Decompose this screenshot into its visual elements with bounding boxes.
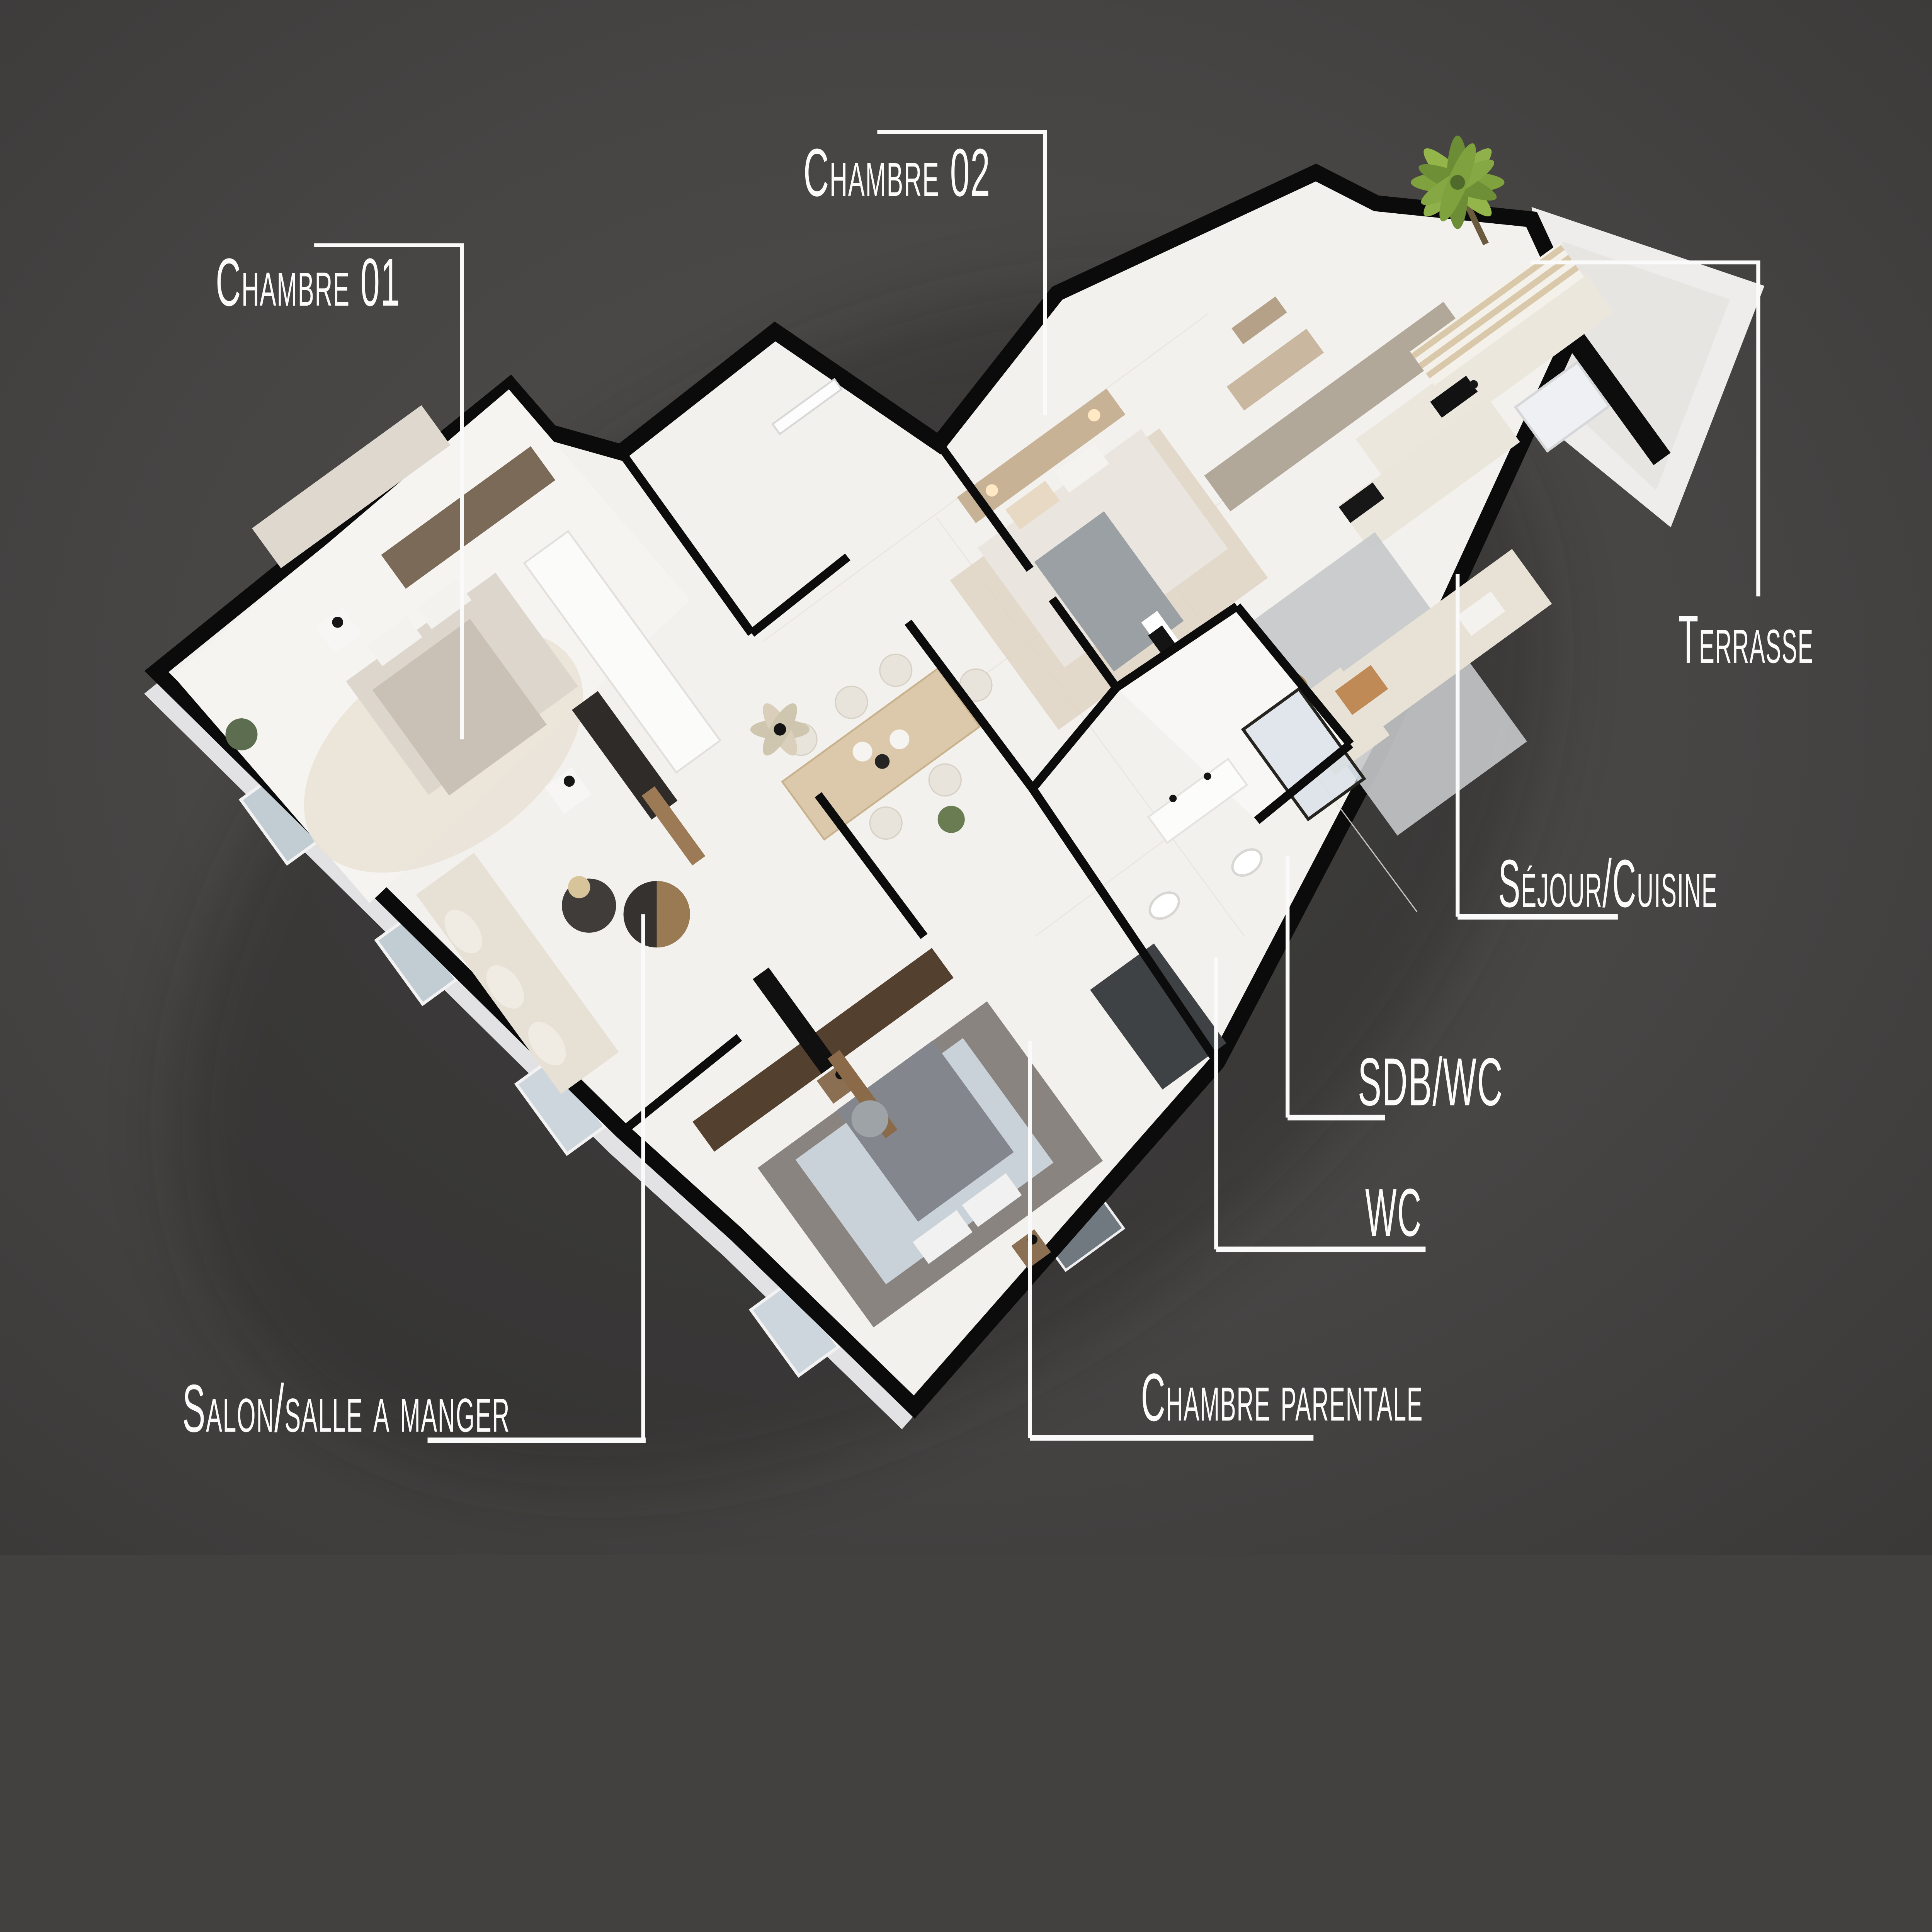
faucet-icon xyxy=(1469,380,1478,389)
lamp-icon xyxy=(986,484,998,497)
dining-chair xyxy=(870,807,902,839)
room-label-terrasse: Terrasse xyxy=(1678,602,1814,678)
dining-chair xyxy=(835,686,867,718)
plant-icon xyxy=(938,806,965,833)
room-label-salon: Salon/salle a manger xyxy=(182,1371,510,1446)
room-label-sejour-cuisine: Séjour/Cuisine xyxy=(1498,846,1718,922)
lamp-icon xyxy=(332,617,343,628)
plate-icon xyxy=(853,742,872,762)
tap-icon xyxy=(1169,795,1177,802)
room-label-chambre-02: Chambre 02 xyxy=(803,135,991,211)
room-label-chambre-01: Chambre 01 xyxy=(216,245,400,320)
vase-icon xyxy=(875,754,889,769)
pampas-decor xyxy=(568,876,590,898)
room-label-chambre-parentale: Chambre parentale xyxy=(1141,1360,1423,1435)
dining-chair xyxy=(880,654,912,686)
room-label-sdb-wc: SDB/WC xyxy=(1358,1044,1503,1120)
plate-icon xyxy=(889,730,909,749)
lamp-icon xyxy=(1088,409,1100,422)
lamp-icon xyxy=(564,776,575,787)
palm-fronds xyxy=(1411,136,1504,229)
room-label-wc: WC xyxy=(1365,1175,1422,1250)
tap-icon xyxy=(1204,772,1211,780)
dining-chair xyxy=(929,764,961,796)
pouf xyxy=(851,1100,888,1138)
floorplan-scene: Chambre 02 Chambre 01 Terrasse Séjour/Cu… xyxy=(0,0,1932,1555)
plant-icon xyxy=(226,718,258,750)
floorplan-svg: Chambre 02 Chambre 01 Terrasse Séjour/Cu… xyxy=(0,0,1932,1555)
